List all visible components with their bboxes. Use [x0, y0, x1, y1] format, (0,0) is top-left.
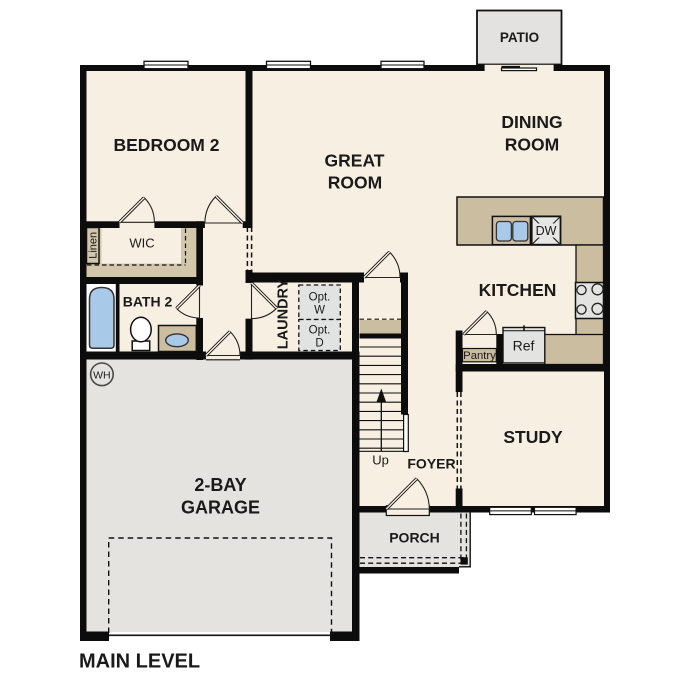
svg-text:Ref: Ref [513, 338, 535, 354]
svg-text:DINING: DINING [501, 112, 562, 132]
svg-text:Linen: Linen [87, 232, 99, 259]
svg-text:DW: DW [536, 224, 557, 238]
svg-text:Opt.: Opt. [309, 292, 331, 304]
svg-text:STUDY: STUDY [503, 427, 563, 447]
svg-text:WH: WH [93, 369, 111, 381]
svg-text:BATH 2: BATH 2 [123, 294, 173, 310]
svg-text:WIC: WIC [129, 236, 154, 251]
svg-text:2-BAY: 2-BAY [194, 475, 246, 495]
svg-text:ROOM: ROOM [505, 135, 559, 155]
svg-text:Up: Up [372, 453, 389, 468]
svg-text:Opt.: Opt. [309, 325, 331, 337]
svg-text:ROOM: ROOM [328, 173, 382, 193]
svg-text:FOYER: FOYER [407, 455, 455, 471]
svg-text:Pantry: Pantry [463, 350, 496, 362]
svg-text:LAUNDRY: LAUNDRY [276, 279, 292, 350]
svg-text:GREAT: GREAT [325, 151, 385, 171]
svg-text:PATIO: PATIO [500, 30, 539, 45]
svg-text:BEDROOM 2: BEDROOM 2 [114, 135, 220, 155]
svg-text:MAIN LEVEL: MAIN LEVEL [79, 651, 200, 673]
svg-text:PORCH: PORCH [389, 530, 440, 546]
svg-text:GARAGE: GARAGE [181, 498, 260, 518]
svg-text:KITCHEN: KITCHEN [479, 280, 557, 300]
svg-text:W: W [314, 305, 325, 317]
svg-text:D: D [315, 338, 323, 350]
